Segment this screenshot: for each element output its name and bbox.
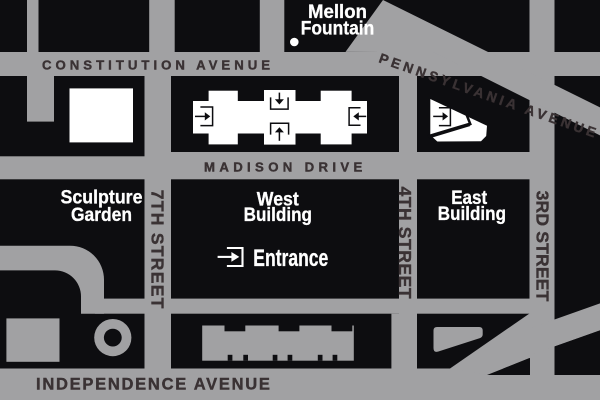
svg-text:Fountain: Fountain [301,18,375,40]
svg-text:INDEPENDENCE AVENUE: INDEPENDENCE AVENUE [36,376,272,394]
svg-text:Building: Building [244,204,312,226]
svg-text:4TH STREET: 4TH STREET [395,187,415,300]
svg-text:3RD STREET: 3RD STREET [533,191,553,302]
svg-text:CONSTITUTION AVENUE: CONSTITUTION AVENUE [42,58,274,73]
svg-text:Entrance: Entrance [253,245,328,272]
svg-text:7TH STREET: 7TH STREET [148,190,168,310]
svg-text:Garden: Garden [71,204,132,226]
svg-text:Building: Building [438,203,506,225]
svg-text:MADISON DRIVE: MADISON DRIVE [204,160,367,175]
